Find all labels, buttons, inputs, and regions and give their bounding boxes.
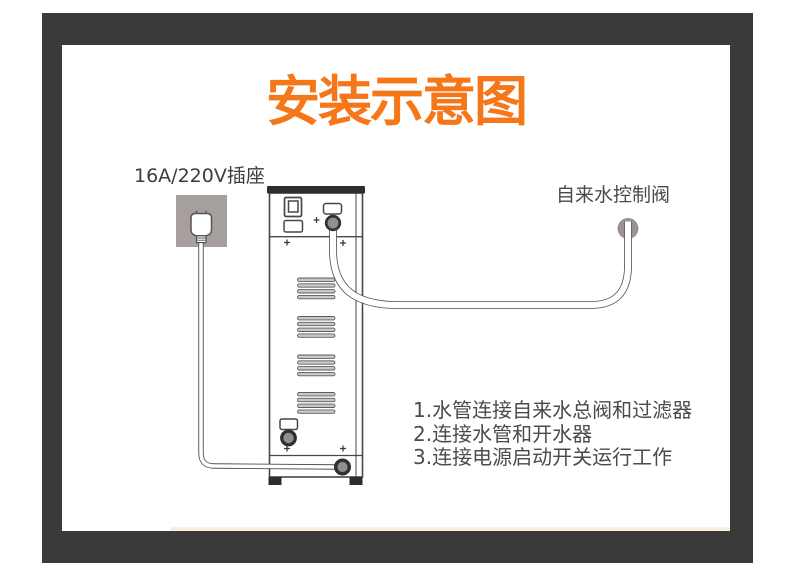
vent-slat [298,295,336,298]
vent-slat [298,355,336,358]
water-heater [267,186,365,485]
vent-slat [298,290,336,293]
vent-slat [298,322,336,325]
plug-body [191,214,212,236]
vent-slat [298,398,336,401]
vent-slat [298,284,336,287]
heater-foot-left [269,477,282,485]
vent-slat [298,278,336,281]
vent-slat [298,367,336,370]
vent-slat [298,372,336,375]
drain-valve [282,431,296,445]
switch-plate [284,221,303,233]
vent-slat [298,410,336,413]
power-inlet [336,460,350,474]
heater-foot-right [350,477,363,485]
page-root: 安装示意图 16A/220V插座 自来水控制阀 1.水管连接自来水总阀和过滤器 … [0,0,790,576]
power-switch-button [289,201,299,212]
installation-diagram [0,0,790,576]
vent-slat [298,404,336,407]
vent-slat [298,328,336,331]
plug-collar [197,236,207,243]
drain-plate [280,419,298,430]
heater-top-cap [267,186,365,194]
water-hose [333,222,628,306]
vent-slat [298,317,336,320]
vent-slat [298,334,336,337]
hose-port [326,216,340,230]
vent-slat [298,361,336,364]
vent-slat [298,393,336,396]
hose-port-plate [324,204,342,215]
